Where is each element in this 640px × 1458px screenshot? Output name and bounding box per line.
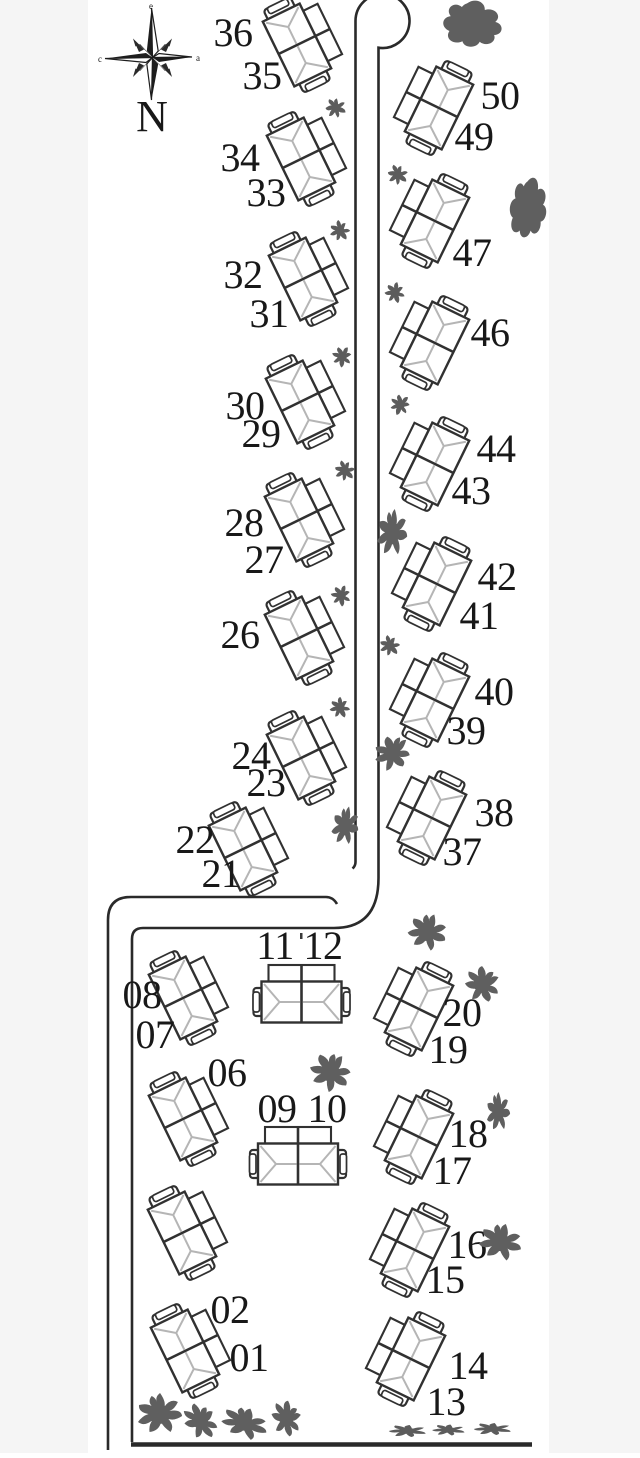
svg-text:27: 27 xyxy=(245,537,284,582)
svg-text:41: 41 xyxy=(460,593,499,638)
svg-text:19: 19 xyxy=(429,1027,468,1072)
svg-text:01: 01 xyxy=(230,1335,269,1380)
svg-text:26: 26 xyxy=(221,612,260,657)
svg-text:36: 36 xyxy=(214,10,253,55)
svg-text:31: 31 xyxy=(250,291,289,336)
svg-text:17: 17 xyxy=(433,1148,472,1193)
svg-text:13: 13 xyxy=(427,1379,466,1424)
svg-text:39: 39 xyxy=(447,708,486,753)
svg-text:06: 06 xyxy=(208,1050,247,1095)
svg-text:e: e xyxy=(149,1,153,11)
svg-text:N: N xyxy=(136,92,168,141)
svg-text:47: 47 xyxy=(453,230,492,275)
svg-text:12: 12 xyxy=(304,923,343,968)
svg-text:09: 09 xyxy=(258,1086,297,1131)
svg-text:43: 43 xyxy=(452,468,491,513)
svg-text:46: 46 xyxy=(471,310,510,355)
svg-text:37: 37 xyxy=(443,829,482,874)
svg-text:02: 02 xyxy=(211,1287,250,1332)
svg-text:29: 29 xyxy=(242,411,281,456)
svg-text:35: 35 xyxy=(243,53,282,98)
svg-text:08: 08 xyxy=(123,972,162,1017)
svg-text:11: 11 xyxy=(256,923,294,968)
svg-text:10: 10 xyxy=(308,1086,347,1131)
svg-text:50: 50 xyxy=(481,73,520,118)
svg-text:49: 49 xyxy=(455,114,494,159)
svg-text:21: 21 xyxy=(202,851,241,896)
svg-text:23: 23 xyxy=(247,760,286,805)
svg-text:c: c xyxy=(98,54,102,64)
svg-text:a: a xyxy=(196,53,200,63)
svg-text:07: 07 xyxy=(136,1012,175,1057)
svg-text:15: 15 xyxy=(426,1257,465,1302)
svg-text:33: 33 xyxy=(247,170,286,215)
svg-text:44: 44 xyxy=(477,426,517,471)
